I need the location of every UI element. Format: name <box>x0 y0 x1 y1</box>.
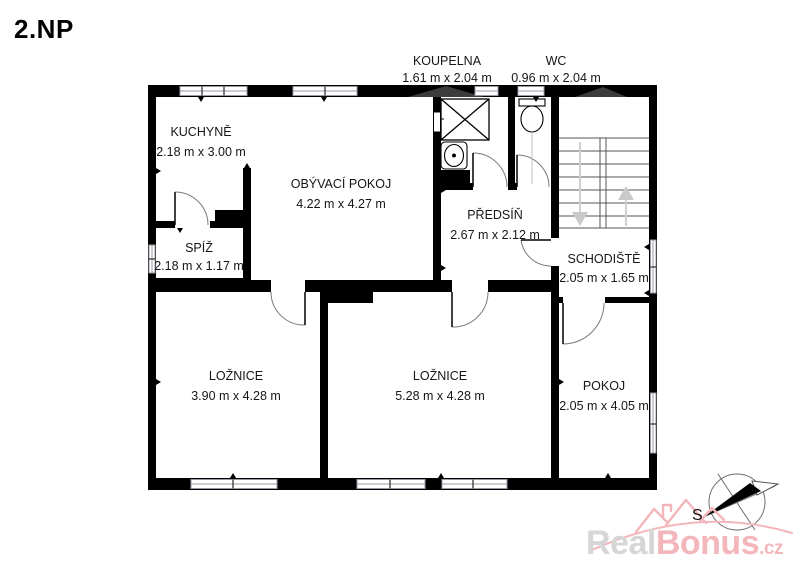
room-dims: 3.90 m x 4.28 m <box>191 386 281 406</box>
room-dims: 5.28 m x 4.28 m <box>395 386 485 406</box>
room-name: SPÍŽ <box>154 239 244 257</box>
room-dims: 2.67 m x 2.12 m <box>450 225 540 245</box>
room-label-wc: WC 0.96 m x 2.04 m <box>511 53 601 86</box>
room-name: POKOJ <box>559 376 649 396</box>
room-label-kuchyne: KUCHYNĚ 2.18 m x 3.00 m <box>156 122 246 162</box>
room-label-loznice-1: LOŽNICE 3.90 m x 4.28 m <box>191 366 281 406</box>
room-name: OBÝVACÍ POKOJ <box>291 174 392 194</box>
shower-icon <box>441 99 489 140</box>
staircase <box>559 138 649 228</box>
room-label-schodiste: SCHODIŠTĚ 2.05 m x 1.65 m <box>559 250 649 288</box>
room-name: KOUPELNA <box>402 53 492 70</box>
bathroom-cabinet <box>441 170 470 183</box>
room-dims: 0.96 m x 2.04 m <box>511 70 601 87</box>
room-label-obyvaci-pokoj: OBÝVACÍ POKOJ 4.22 m x 4.27 m <box>291 174 392 214</box>
room-name: WC <box>511 53 601 70</box>
realbonus-watermark: RealBonus.cz <box>586 524 783 563</box>
room-name: LOŽNICE <box>395 366 485 386</box>
watermark-tld: .cz <box>759 538 783 559</box>
room-label-loznice-2: LOŽNICE 5.28 m x 4.28 m <box>395 366 485 406</box>
floorplan-page: 2.NP KUCHYNĚ 2.18 m x 3.00 m OBÝVACÍ POK… <box>0 0 800 566</box>
room-name: SCHODIŠTĚ <box>559 250 649 269</box>
sink-icon <box>441 142 467 169</box>
page-title: 2.NP <box>14 14 74 45</box>
room-dims: 1.61 m x 2.04 m <box>402 70 492 87</box>
room-label-koupelna: KOUPELNA 1.61 m x 2.04 m <box>402 53 492 86</box>
watermark-bonus: Bonus <box>656 524 759 562</box>
compass-north-label: S <box>692 507 703 525</box>
room-label-predsin: PŘEDSÍŇ 2.67 m x 2.12 m <box>450 205 540 245</box>
room-name: KUCHYNĚ <box>156 122 246 142</box>
stairs-down-arrow-icon <box>572 212 588 226</box>
room-name: PŘEDSÍŇ <box>450 205 540 225</box>
room-label-spiz: SPÍŽ 2.18 m x 1.17 m <box>154 239 244 275</box>
room-label-pokoj: POKOJ 2.05 m x 4.05 m <box>559 376 649 416</box>
room-dims: 2.05 m x 1.65 m <box>559 269 649 288</box>
room-dims: 2.05 m x 4.05 m <box>559 396 649 416</box>
room-dims: 4.22 m x 4.27 m <box>291 194 392 214</box>
toilet-icon <box>519 99 545 184</box>
room-dims: 2.18 m x 3.00 m <box>156 142 246 162</box>
room-name: LOŽNICE <box>191 366 281 386</box>
stairs-up-arrow-icon <box>618 186 634 200</box>
stair-direction-arrows <box>572 142 634 226</box>
bathroom-fixtures <box>434 99 546 184</box>
room-dims: 2.18 m x 1.17 m <box>154 257 244 275</box>
floorplan-drawing <box>0 0 800 566</box>
watermark-real: Real <box>586 524 656 562</box>
